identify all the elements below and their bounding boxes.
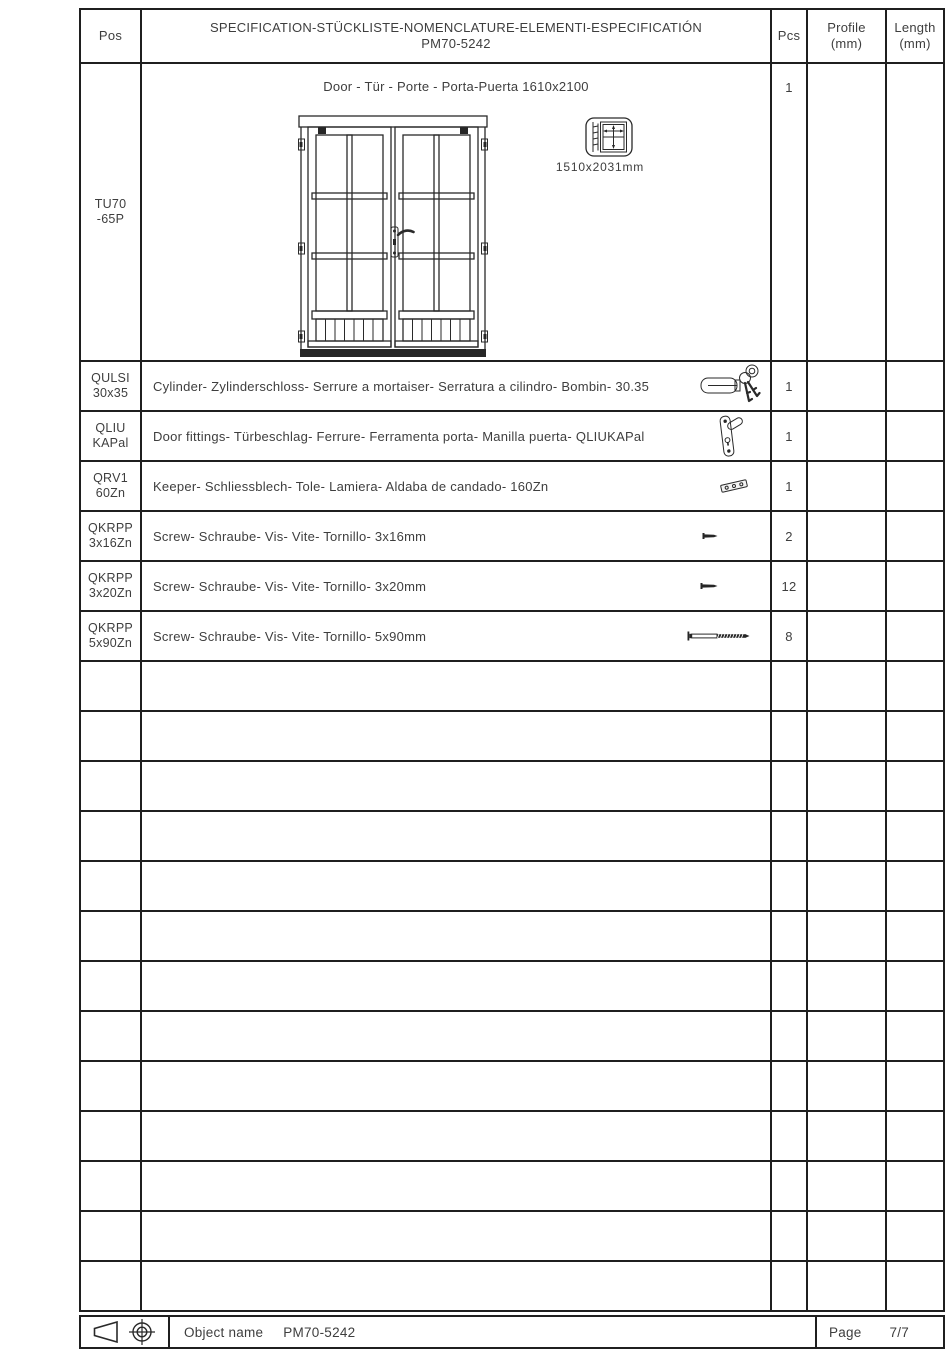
empty-pos-cell (81, 1112, 142, 1162)
length-cell (887, 512, 945, 562)
profile-cell (808, 612, 887, 662)
door-title: Door - Tür - Porte - Porta-Puerta 1610x2… (142, 79, 770, 94)
empty-desc-cell (142, 1112, 772, 1162)
col-header-profile: Profile (mm) (808, 10, 887, 64)
item-description-cell: Screw- Schraube- Vis- Vite- Tornillo- 5x… (142, 612, 772, 662)
empty-pos-cell (81, 812, 142, 862)
empty-profile-cell (808, 1112, 887, 1162)
empty-pcs-cell (772, 912, 808, 962)
empty-pcs-cell (772, 762, 808, 812)
screw-small-icon (700, 582, 718, 590)
empty-profile-cell (808, 912, 887, 962)
page-cell: Page 7/7 (817, 1317, 943, 1347)
empty-desc-cell (142, 812, 772, 862)
door-dimension-icon (585, 117, 633, 157)
projection-symbols-cell (81, 1317, 170, 1347)
length-cell (887, 612, 945, 662)
empty-profile-cell (808, 1012, 887, 1062)
col-header-title: SPECIFICATION-STÜCKLISTE-NOMENCLATURE-EL… (142, 10, 772, 64)
pcs-value: 1 (772, 462, 808, 512)
item-description-cell: Keeper- Schliessblech- Tole- Lamiera- Al… (142, 462, 772, 512)
length-cell (887, 412, 945, 462)
empty-pos-cell (81, 862, 142, 912)
length-cell (887, 462, 945, 512)
door-size-label: 1510x2031mm (540, 160, 660, 174)
empty-pcs-cell (772, 712, 808, 762)
empty-desc-cell (142, 1162, 772, 1212)
empty-length-cell (887, 1012, 945, 1062)
pcs-value: 12 (772, 562, 808, 612)
empty-pos-cell (81, 1012, 142, 1062)
page-label: Page (829, 1325, 862, 1340)
empty-pcs-cell (772, 1262, 808, 1312)
profile-cell (808, 64, 887, 362)
profile-cell (808, 562, 887, 612)
pos-label-door: TU70 -65P (81, 64, 142, 362)
length-cell (887, 64, 945, 362)
empty-length-cell (887, 762, 945, 812)
empty-profile-cell (808, 1162, 887, 1212)
empty-profile-cell (808, 762, 887, 812)
pos-label-screw-3x20: QKRPP 3x20Zn (81, 562, 142, 612)
empty-pos-cell (81, 1262, 142, 1312)
empty-pcs-cell (772, 1212, 808, 1262)
empty-length-cell (887, 712, 945, 762)
empty-length-cell (887, 962, 945, 1012)
empty-desc-cell (142, 1262, 772, 1312)
pcs-value: 1 (772, 362, 808, 412)
empty-pcs-cell (772, 1112, 808, 1162)
cylinder-lock-keys-icon (699, 363, 761, 409)
empty-desc-cell (142, 962, 772, 1012)
item-description-cell: Screw- Schraube- Vis- Vite- Tornillo- 3x… (142, 562, 772, 612)
empty-pos-cell (81, 1062, 142, 1112)
pcs-value: 2 (772, 512, 808, 562)
length-cell (887, 562, 945, 612)
empty-length-cell (887, 1262, 945, 1312)
profile-cell (808, 362, 887, 412)
empty-pcs-cell (772, 662, 808, 712)
empty-profile-cell (808, 712, 887, 762)
pos-label-screw-5x90: QKRPP 5x90Zn (81, 612, 142, 662)
specification-sheet: Pos SPECIFICATION-STÜCKLISTE-NOMENCLATUR… (0, 0, 950, 1353)
empty-desc-cell (142, 662, 772, 712)
item-description: Screw- Schraube- Vis- Vite- Tornillo- 3x… (153, 529, 426, 544)
empty-desc-cell (142, 1012, 772, 1062)
empty-profile-cell (808, 812, 887, 862)
item-description-cell: Door fittings- Türbeschlag- Ferrure- Fer… (142, 412, 772, 462)
item-description: Keeper- Schliessblech- Tole- Lamiera- Al… (153, 479, 548, 494)
door-description-cell: Door - Tür - Porte - Porta-Puerta 1610x2… (142, 64, 772, 362)
pos-label-fittings: QLIU KAPal (81, 412, 142, 462)
empty-length-cell (887, 812, 945, 862)
page-number: 7/7 (890, 1325, 910, 1340)
empty-desc-cell (142, 1212, 772, 1262)
door-handle-icon (712, 413, 746, 459)
empty-pcs-cell (772, 812, 808, 862)
profile-cell (808, 462, 887, 512)
empty-length-cell (887, 1112, 945, 1162)
empty-profile-cell (808, 862, 887, 912)
empty-pcs-cell (772, 1012, 808, 1062)
empty-pcs-cell (772, 862, 808, 912)
spec-table: Pos SPECIFICATION-STÜCKLISTE-NOMENCLATUR… (79, 8, 945, 1312)
profile-cell (808, 512, 887, 562)
empty-pos-cell (81, 712, 142, 762)
empty-pos-cell (81, 1162, 142, 1212)
pcs-value-door: 1 (772, 64, 808, 362)
item-description: Screw- Schraube- Vis- Vite- Tornillo- 3x… (153, 579, 426, 594)
empty-pos-cell (81, 912, 142, 962)
door-drawing (298, 115, 488, 359)
spec-title-line2: PM70-5242 (421, 36, 490, 52)
screw-small-icon (702, 532, 718, 540)
empty-length-cell (887, 662, 945, 712)
empty-profile-cell (808, 1262, 887, 1312)
pos-label-cylinder: QULSI 30x35 (81, 362, 142, 412)
item-description: Cylinder- Zylinderschloss- Serrure a mor… (153, 379, 649, 394)
col-header-pcs: Pcs (772, 10, 808, 64)
empty-profile-cell (808, 962, 887, 1012)
datum-crosshair-icon (128, 1318, 156, 1346)
empty-length-cell (887, 862, 945, 912)
pcs-value: 1 (772, 412, 808, 462)
empty-pcs-cell (772, 962, 808, 1012)
pos-label-screw-3x16: QKRPP 3x16Zn (81, 512, 142, 562)
pos-label-keeper: QRV1 60Zn (81, 462, 142, 512)
item-description-cell: Cylinder- Zylinderschloss- Serrure a mor… (142, 362, 772, 412)
empty-pcs-cell (772, 1062, 808, 1112)
pcs-value: 8 (772, 612, 808, 662)
object-name-value: PM70-5242 (283, 1325, 355, 1340)
empty-pos-cell (81, 762, 142, 812)
object-name-cell: Object name PM70-5242 (170, 1317, 817, 1347)
empty-desc-cell (142, 1062, 772, 1112)
empty-desc-cell (142, 712, 772, 762)
title-block-footer: Object name PM70-5242 Page 7/7 (79, 1315, 945, 1349)
item-description: Screw- Schraube- Vis- Vite- Tornillo- 5x… (153, 629, 426, 644)
strike-plate-icon (719, 477, 749, 495)
empty-length-cell (887, 912, 945, 962)
empty-pcs-cell (772, 1162, 808, 1212)
empty-pos-cell (81, 662, 142, 712)
empty-pos-cell (81, 962, 142, 1012)
empty-desc-cell (142, 862, 772, 912)
first-angle-projection-cone-icon (93, 1321, 119, 1343)
empty-profile-cell (808, 1212, 887, 1262)
empty-profile-cell (808, 1062, 887, 1112)
empty-length-cell (887, 1212, 945, 1262)
col-header-pos: Pos (81, 10, 142, 64)
empty-length-cell (887, 1062, 945, 1112)
empty-length-cell (887, 1162, 945, 1212)
screw-long-icon (687, 631, 750, 641)
empty-pos-cell (81, 1212, 142, 1262)
spec-title-line1: SPECIFICATION-STÜCKLISTE-NOMENCLATURE-EL… (210, 20, 702, 36)
empty-desc-cell (142, 762, 772, 812)
empty-profile-cell (808, 662, 887, 712)
length-cell (887, 362, 945, 412)
object-name-label: Object name (184, 1325, 263, 1340)
empty-desc-cell (142, 912, 772, 962)
item-description: Door fittings- Türbeschlag- Ferrure- Fer… (153, 429, 645, 444)
item-description-cell: Screw- Schraube- Vis- Vite- Tornillo- 3x… (142, 512, 772, 562)
profile-cell (808, 412, 887, 462)
col-header-length: Length (mm) (887, 10, 945, 64)
